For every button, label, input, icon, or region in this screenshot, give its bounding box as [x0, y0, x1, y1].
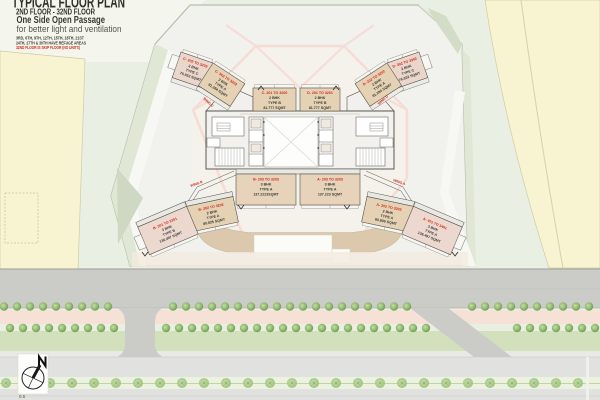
- svg-text:2 BHK: 2 BHK: [269, 96, 280, 100]
- svg-text:137.223 SQMT: 137.223 SQMT: [318, 192, 343, 196]
- svg-text:for better light and ventilati: for better light and ventilation: [17, 24, 122, 34]
- svg-text:81.777 SQMT: 81.777 SQMT: [309, 106, 332, 110]
- svg-text:B- 203 TO 3203: B- 203 TO 3203: [253, 178, 279, 182]
- svg-text:2 BHK: 2 BHK: [315, 96, 326, 100]
- svg-text:TYPE B: TYPE B: [268, 101, 281, 105]
- svg-text:32ND FLOOR IS SKIP FLOOR (NO U: 32ND FLOOR IS SKIP FLOOR (NO UNITS): [16, 45, 80, 50]
- svg-text:3 BHK: 3 BHK: [261, 183, 272, 187]
- svg-text:D- 201 TO 3201: D- 201 TO 3201: [307, 91, 333, 95]
- svg-text:TYPE A: TYPE A: [260, 188, 273, 192]
- svg-text:137.2223SQMT: 137.2223SQMT: [253, 192, 279, 196]
- svg-text:3 BHK: 3 BHK: [325, 183, 336, 187]
- svg-text:C- 201 TO 3200: C- 201 TO 3200: [262, 91, 288, 95]
- svg-text:TYPE A: TYPE A: [324, 188, 337, 192]
- svg-text:TYPE B: TYPE B: [314, 101, 327, 105]
- svg-text:0.5: 0.5: [19, 394, 26, 399]
- svg-text:81.777 SQMT: 81.777 SQMT: [263, 106, 286, 110]
- svg-text:A- 203 TO 3203: A- 203 TO 3203: [317, 178, 343, 182]
